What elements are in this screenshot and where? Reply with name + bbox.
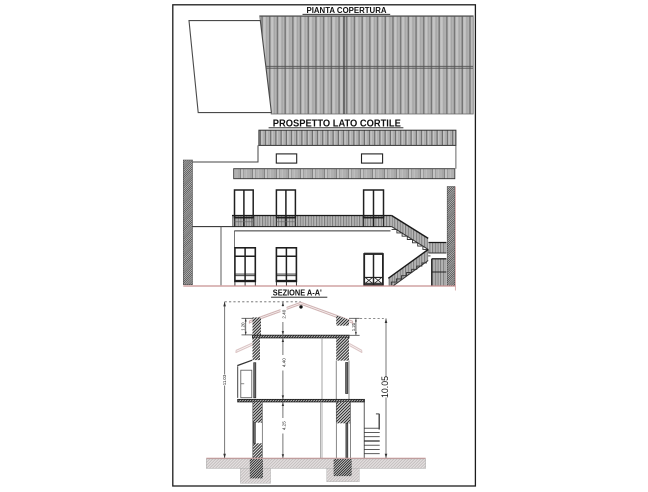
svg-text:1.20: 1.20 [241, 322, 246, 331]
svg-text:PIANTA COPERTURA: PIANTA COPERTURA [307, 6, 387, 15]
svg-text:1.20: 1.20 [351, 322, 356, 331]
svg-text:11.03: 11.03 [222, 374, 227, 385]
svg-text:4.25: 4.25 [282, 421, 287, 430]
svg-text:2.40: 2.40 [282, 309, 287, 318]
svg-text:10.05: 10.05 [380, 376, 390, 398]
svg-text:SEZIONE A-A': SEZIONE A-A' [273, 287, 322, 297]
svg-text:4.40: 4.40 [282, 358, 287, 367]
